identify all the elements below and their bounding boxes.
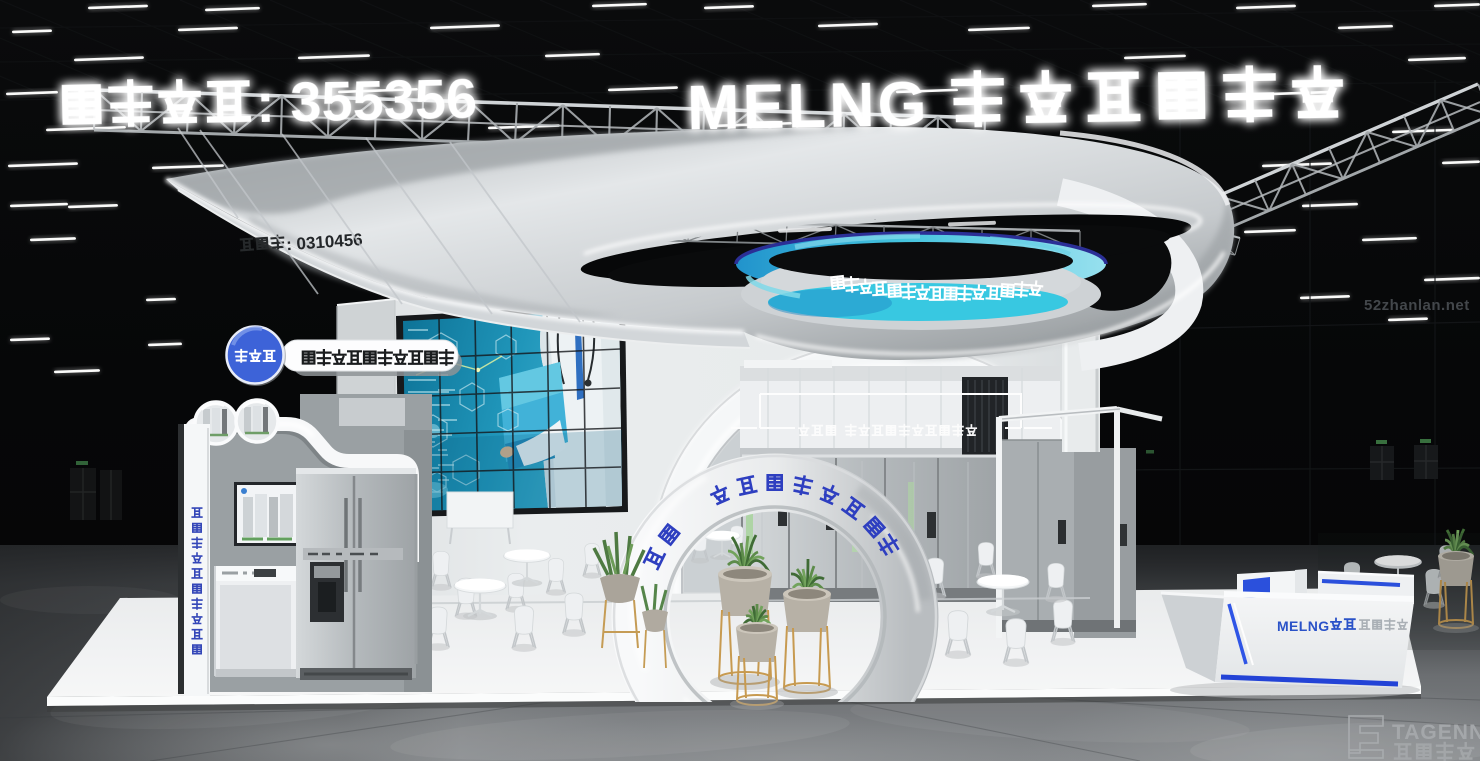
svg-text:MELNG: MELNG bbox=[686, 69, 930, 143]
svg-text:MELNG: MELNG bbox=[1277, 618, 1330, 634]
svg-text:: 355356: : 355356 bbox=[255, 66, 477, 134]
svg-text:TAGENN: TAGENN bbox=[1392, 721, 1480, 744]
svg-text:52zhanlan.net: 52zhanlan.net bbox=[1364, 297, 1470, 314]
